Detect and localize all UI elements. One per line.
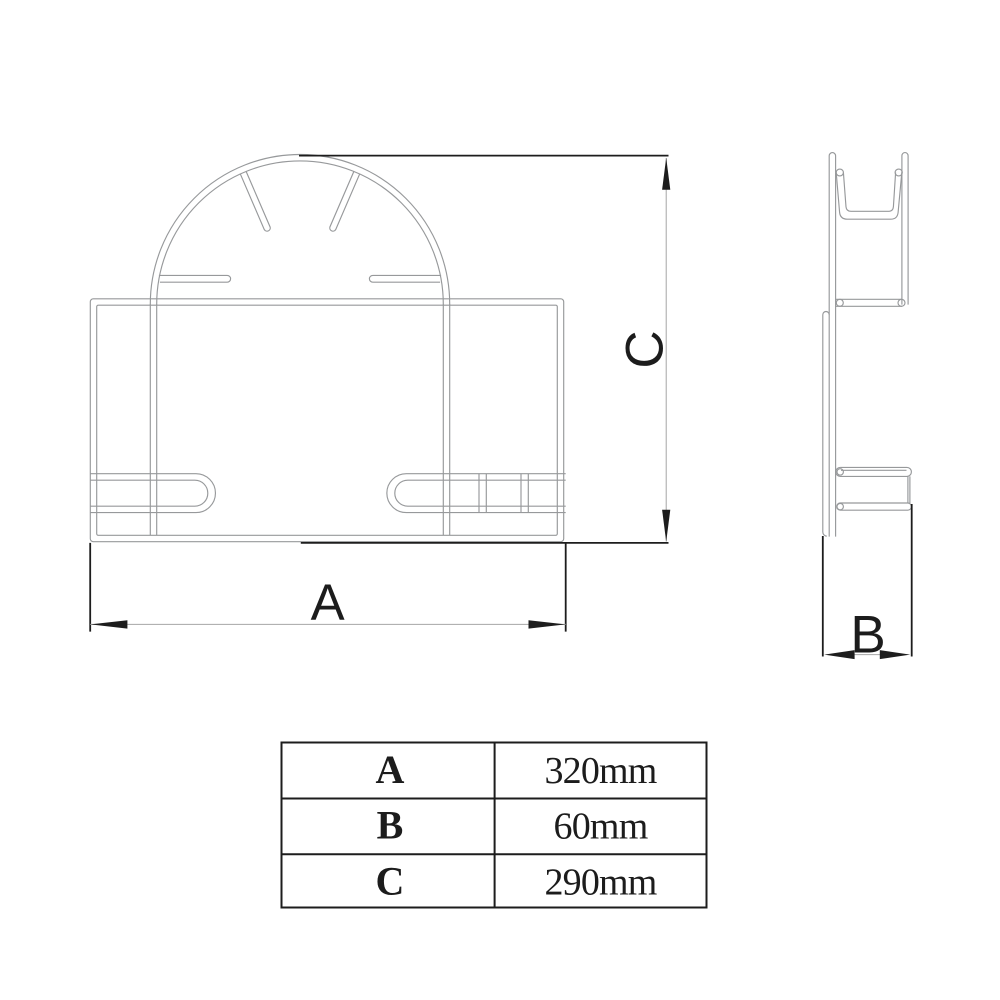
svg-text:C: C bbox=[376, 859, 405, 904]
svg-text:B: B bbox=[850, 606, 885, 665]
svg-text:A: A bbox=[311, 574, 345, 631]
svg-text:60mm: 60mm bbox=[554, 806, 648, 848]
svg-text:320mm: 320mm bbox=[544, 750, 656, 792]
svg-text:B: B bbox=[377, 803, 404, 848]
svg-text:290mm: 290mm bbox=[544, 862, 656, 904]
svg-text:A: A bbox=[376, 747, 405, 792]
svg-text:C: C bbox=[616, 330, 675, 368]
